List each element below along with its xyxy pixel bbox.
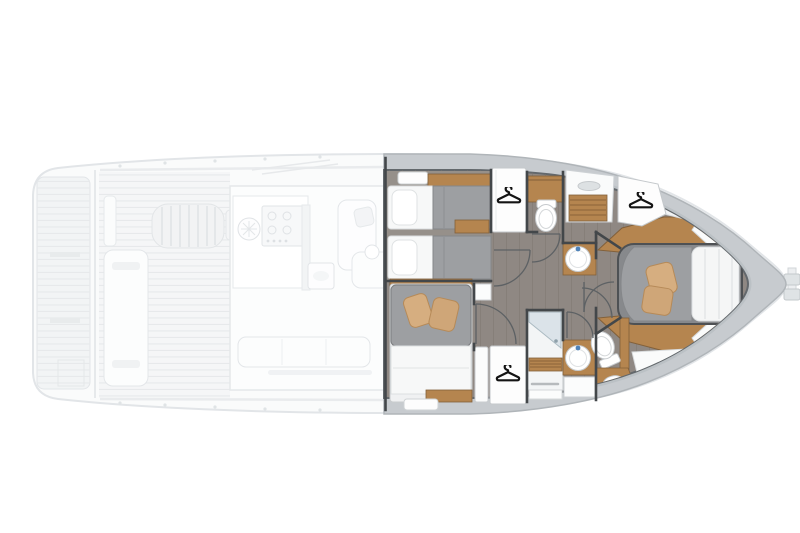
washbasin-nook <box>563 242 596 275</box>
faucet <box>576 247 581 252</box>
coffee-table <box>308 263 334 289</box>
bed-linen <box>391 346 471 394</box>
overhead-hatch <box>398 172 428 184</box>
cabinet <box>564 377 595 397</box>
overhead-hatch <box>404 399 438 410</box>
shower-cabin <box>527 312 563 399</box>
double-bed <box>390 284 472 402</box>
twin-guest-cabin <box>386 171 491 281</box>
pillow-white <box>392 190 417 225</box>
single-bed-2 <box>388 236 491 279</box>
nightstand <box>455 220 489 233</box>
deck-hatch-small <box>652 384 679 396</box>
toilet <box>536 200 557 232</box>
teak-shelf <box>428 174 491 186</box>
stove <box>262 206 304 246</box>
yacht-floorplan: Motor yacht deck plan: ghosted main deck… <box>0 0 800 533</box>
pillow <box>641 285 674 316</box>
faucet <box>576 346 581 351</box>
salon <box>230 186 396 390</box>
guest-wardrobe-aft <box>475 346 526 404</box>
teak-grate <box>569 195 607 221</box>
owner-island-bed <box>618 244 742 324</box>
swim-platform <box>37 177 90 389</box>
yacht-floorplan-svg: Motor yacht deck plan: ghosted main deck… <box>0 0 800 533</box>
nightstand-white <box>475 284 491 300</box>
guest-wardrobe-forward <box>492 168 526 232</box>
pillow-white <box>392 240 417 275</box>
shower-vanity <box>566 170 614 222</box>
vanity-basin <box>578 182 600 191</box>
teak-strip <box>620 318 629 372</box>
washbasin-nook <box>563 340 596 397</box>
lower-deck-plan <box>384 154 786 414</box>
